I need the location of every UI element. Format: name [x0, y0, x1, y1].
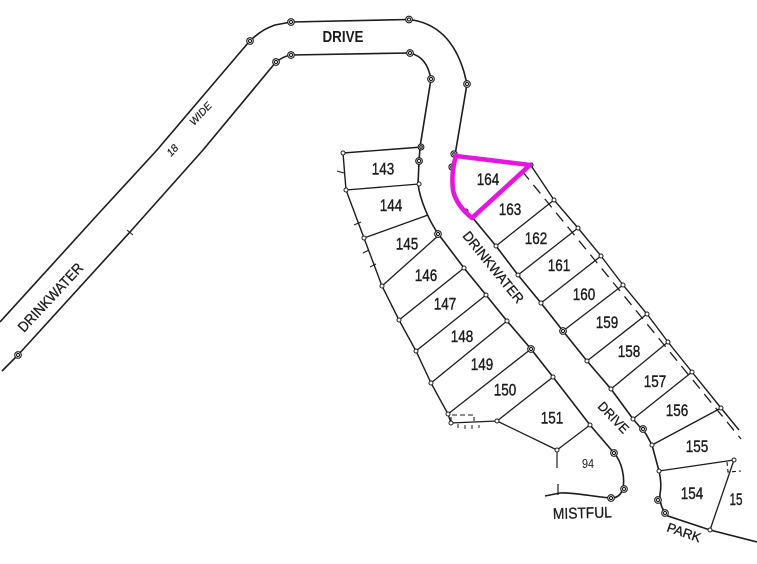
svg-text:PARK: PARK: [665, 520, 703, 546]
svg-text:159: 159: [596, 313, 619, 332]
svg-text:164: 164: [477, 170, 500, 189]
svg-text:154: 154: [681, 484, 704, 503]
svg-text:160: 160: [573, 285, 596, 304]
svg-text:94: 94: [582, 457, 594, 471]
svg-text:15: 15: [730, 490, 743, 509]
svg-text:150: 150: [494, 381, 517, 400]
svg-text:147: 147: [434, 295, 457, 314]
svg-text:DRIVE: DRIVE: [595, 399, 632, 437]
svg-text:145: 145: [396, 235, 419, 254]
svg-text:149: 149: [471, 355, 494, 374]
svg-text:144: 144: [380, 196, 403, 215]
svg-text:161: 161: [548, 256, 571, 275]
svg-text:DRINKWATER: DRINKWATER: [460, 228, 527, 306]
svg-text:143: 143: [372, 160, 395, 179]
svg-text:157: 157: [644, 372, 667, 391]
svg-text:148: 148: [451, 327, 474, 346]
svg-text:155: 155: [686, 437, 709, 456]
svg-text:156: 156: [666, 401, 689, 420]
svg-text:146: 146: [415, 266, 438, 285]
svg-text:158: 158: [618, 342, 641, 361]
svg-text:151: 151: [541, 409, 564, 428]
svg-text:18: 18: [164, 142, 181, 159]
svg-text:WIDE: WIDE: [187, 99, 215, 128]
svg-text:DRINKWATER: DRINKWATER: [15, 260, 87, 335]
svg-text:MISTFUL: MISTFUL: [553, 504, 613, 523]
svg-text:DRIVE: DRIVE: [323, 29, 364, 46]
svg-text:163: 163: [499, 200, 522, 219]
svg-text:162: 162: [525, 229, 548, 248]
